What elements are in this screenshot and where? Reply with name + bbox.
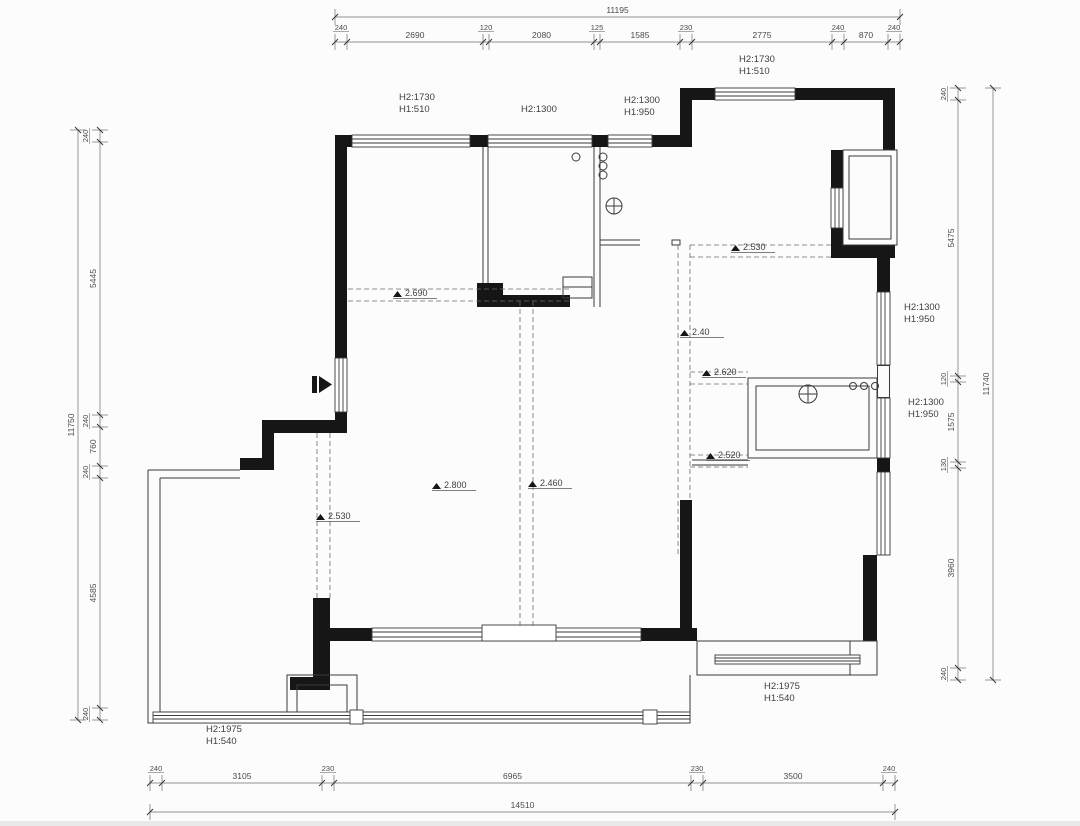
dim-value: 1585: [631, 30, 650, 40]
floor-plan-canvas: 2402690120208012515852302775240870240111…: [0, 0, 1080, 821]
dim-value: 120: [480, 23, 493, 32]
window-upper-right-room: [831, 188, 843, 228]
dim-overall: 11750: [66, 413, 76, 436]
dim-value: 4585: [88, 583, 98, 602]
dim-value: 240: [883, 764, 896, 773]
dim-value: 240: [832, 23, 845, 32]
dim-value: 240: [81, 130, 90, 143]
dim-value: 240: [939, 88, 948, 101]
dim-value: 5445: [88, 269, 98, 288]
dim-value: 2775: [753, 30, 772, 40]
windows: [153, 88, 890, 724]
kitchen-sink: [799, 385, 817, 403]
floor-drain: [572, 153, 580, 161]
dim-value: 240: [939, 668, 948, 681]
elevation-value: 2.520: [718, 450, 741, 460]
dim-value: 240: [81, 415, 90, 428]
window-top-middle: [488, 135, 592, 147]
window-right-2: [877, 398, 890, 458]
elevation-marker: 2.40: [680, 327, 724, 338]
window-label-text: H1:950: [624, 107, 655, 118]
dim-value: 5475: [946, 228, 956, 247]
elevation-marker: 2.530: [316, 511, 360, 522]
window-label-text: H2:1300: [624, 95, 660, 106]
dim-chain-bottom: 24031052306965230350024014510: [147, 764, 898, 820]
window-label-text: H2:1300: [908, 397, 944, 408]
elevation-marker: 2.800: [432, 480, 476, 491]
dim-value: 230: [691, 764, 704, 773]
window-right-3: [877, 472, 890, 555]
dim-value: 2080: [532, 30, 551, 40]
dim-overall: 14510: [511, 800, 535, 810]
elevation-value: 2.690: [405, 288, 428, 298]
window-label-top-bath-window: H2:1300H1:950: [624, 95, 660, 118]
dim-value: 3500: [784, 771, 803, 781]
window-label-text: H1:510: [739, 66, 770, 77]
window-label-text: H2:1300: [904, 302, 940, 313]
dim-value: 240: [81, 708, 90, 721]
window-label-bottom-right-window: H2:1975H1:540: [764, 681, 800, 704]
dim-overall: 11740: [981, 372, 991, 395]
dim-value: 870: [859, 30, 873, 40]
window-label-right-lower-window: H2:1300H1:950: [908, 397, 944, 420]
elevation-value: 2.620: [714, 367, 737, 377]
window-top-bath: [608, 135, 652, 147]
dim-value: 130: [939, 459, 948, 472]
ceiling-drop-lines: [317, 245, 831, 628]
dim-value: 230: [322, 764, 335, 773]
dim-chain-top: 2402690120208012515852302775240870240111…: [332, 5, 903, 50]
sliding-door-bottom: [372, 625, 641, 641]
dim-value: 240: [335, 23, 348, 32]
dim-value: 240: [150, 764, 163, 773]
elevation-triangle-icon: [432, 483, 441, 489]
elevation-triangle-icon: [528, 481, 537, 487]
window-label-text: H1:950: [908, 409, 939, 420]
window-label-text: H2:1730: [399, 92, 435, 103]
window-label-text: H2:1975: [206, 724, 242, 735]
elevation-triangle-icon: [680, 330, 689, 336]
dim-value: 760: [88, 439, 98, 453]
dim-value: 240: [888, 23, 901, 32]
window-right-1: [877, 292, 890, 365]
window-label-text: H2:1975: [764, 681, 800, 692]
elevation-value: 2.530: [328, 511, 351, 521]
dim-overall: 11195: [606, 5, 629, 15]
dim-value: 6965: [503, 771, 522, 781]
dim-value: 125: [591, 23, 604, 32]
elevation-value: 2.800: [444, 480, 467, 490]
window-label-text: H1:510: [399, 104, 430, 115]
elevation-marker: 2.460: [528, 478, 572, 489]
fixtures: [312, 153, 879, 403]
window-label-text: H1:540: [764, 693, 795, 704]
elevation-triangle-icon: [731, 245, 740, 251]
terrace-window-band: [153, 710, 690, 724]
window-label-right-upper-window: H2:1300H1:950: [904, 302, 940, 325]
window-label-top-middle-window: H2:1300: [521, 104, 557, 115]
dim-value: 1575: [946, 412, 956, 431]
elevation-markers: 2.6902.8002.4602.5302.5302.402.6202.520: [316, 242, 775, 522]
entry-door-marker: [312, 376, 332, 393]
window-label-upper-right-window: H2:1730H1:510: [739, 54, 775, 77]
dimension-chains: 2402690120208012515852302775240870240111…: [66, 5, 1001, 820]
window-label-bottom-left-window: H2:1975H1:540: [206, 724, 242, 747]
elevation-value: 2.460: [540, 478, 563, 488]
elevation-marker: 2.520: [706, 450, 750, 461]
dim-value: 3105: [233, 771, 252, 781]
elevation-value: 2.530: [743, 242, 766, 252]
elevation-marker: 2.690: [393, 288, 437, 299]
dim-value: 240: [81, 466, 90, 479]
washbasin: [606, 198, 622, 214]
dim-chain-right: 24054751201575130396024011740: [939, 85, 1001, 683]
balcony-window-band: [715, 655, 860, 664]
window-label-text: H2:1730: [739, 54, 775, 65]
elevation-value: 2.40: [692, 327, 710, 337]
elevation-triangle-icon: [706, 453, 715, 459]
elevation-marker: 2.530: [731, 242, 775, 253]
elevation-triangle-icon: [702, 370, 711, 376]
window-label-text: H1:540: [206, 736, 237, 747]
window-left-wall: [335, 358, 347, 412]
window-label-top-left-window: H2:1730H1:510: [399, 92, 435, 115]
dim-value: 2690: [406, 30, 425, 40]
dim-value: 230: [680, 23, 693, 32]
window-label-text: H1:950: [904, 314, 935, 325]
dim-chain-left: 2405445240760240458524011750: [66, 127, 108, 723]
window-label-text: H2:1300: [521, 104, 557, 115]
dim-value: 3960: [946, 558, 956, 577]
window-upper-right: [715, 88, 795, 100]
dim-value: 120: [939, 373, 948, 386]
window-top-left: [352, 135, 470, 147]
elevation-triangle-icon: [393, 291, 402, 297]
floor-plan-drawing: 2402690120208012515852302775240870240111…: [0, 0, 1080, 821]
